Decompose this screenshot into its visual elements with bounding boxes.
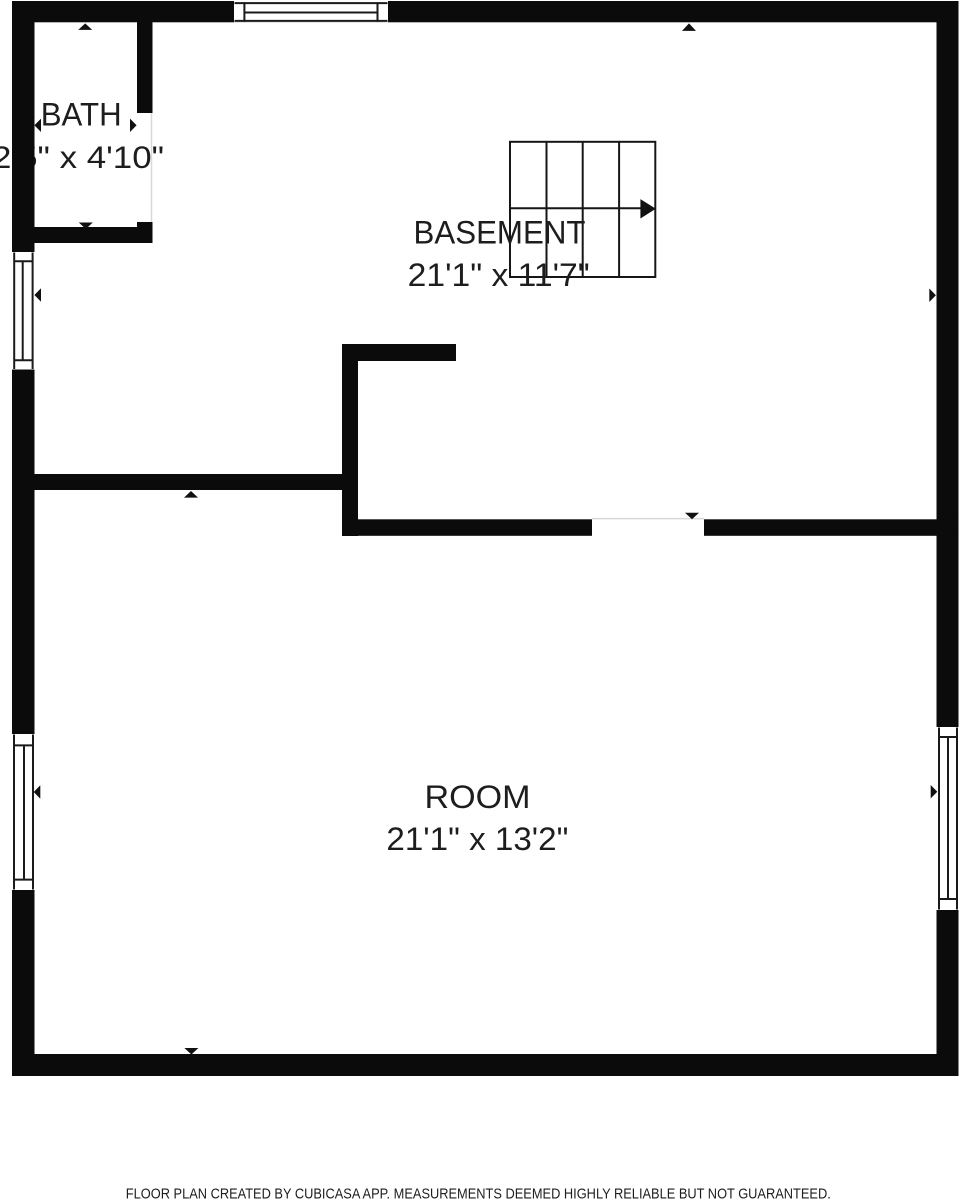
svg-text:ROOM: ROOM (425, 779, 531, 815)
svg-text:FLOOR PLAN CREATED BY CUBICASA: FLOOR PLAN CREATED BY CUBICASA APP. MEAS… (126, 1186, 831, 1200)
svg-text:21'1" x 13'2": 21'1" x 13'2" (386, 821, 568, 857)
svg-text:21'1" x 11'7": 21'1" x 11'7" (408, 257, 590, 293)
svg-text:BATH: BATH (41, 96, 122, 132)
svg-text:BASEMENT: BASEMENT (414, 214, 586, 250)
